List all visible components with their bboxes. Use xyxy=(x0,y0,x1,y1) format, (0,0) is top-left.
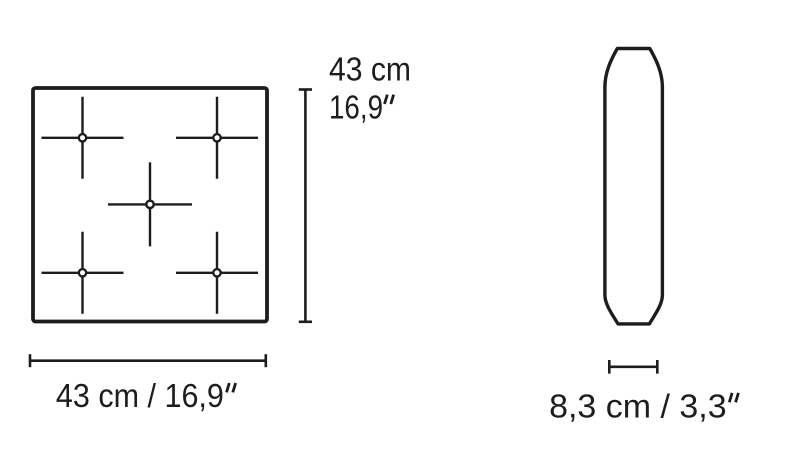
svg-text:43 cm / 16,9: 43 cm / 16,9 xyxy=(56,378,224,415)
svg-text:16,9: 16,9 xyxy=(329,89,383,126)
svg-text:8,3 cm / 3,3: 8,3 cm / 3,3 xyxy=(549,389,727,426)
svg-text:43 cm: 43 cm xyxy=(329,52,411,89)
